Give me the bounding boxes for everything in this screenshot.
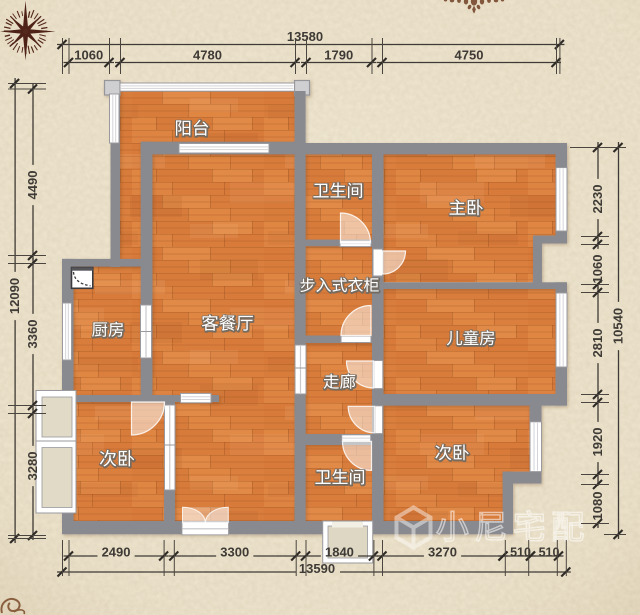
svg-text:510: 510 xyxy=(539,545,560,559)
svg-text:2230: 2230 xyxy=(590,185,605,214)
svg-text:4780: 4780 xyxy=(193,47,222,62)
svg-text:4490: 4490 xyxy=(25,171,40,200)
svg-text:1790: 1790 xyxy=(324,47,353,62)
svg-text:1060: 1060 xyxy=(590,255,605,284)
svg-text:13580: 13580 xyxy=(287,29,323,44)
svg-text:3280: 3280 xyxy=(25,452,40,481)
svg-text:2810: 2810 xyxy=(590,329,605,358)
svg-text:1060: 1060 xyxy=(74,47,103,62)
svg-text:3300: 3300 xyxy=(220,544,249,559)
svg-text:12090: 12090 xyxy=(7,278,22,314)
svg-text:1080: 1080 xyxy=(590,492,605,521)
svg-text:10540: 10540 xyxy=(610,308,625,344)
svg-text:13590: 13590 xyxy=(299,561,335,576)
svg-text:2490: 2490 xyxy=(102,544,131,559)
svg-text:1920: 1920 xyxy=(590,428,605,457)
svg-text:3270: 3270 xyxy=(428,544,457,559)
svg-text:4750: 4750 xyxy=(455,47,484,62)
svg-text:3360: 3360 xyxy=(25,320,40,349)
svg-text:1840: 1840 xyxy=(325,544,354,559)
